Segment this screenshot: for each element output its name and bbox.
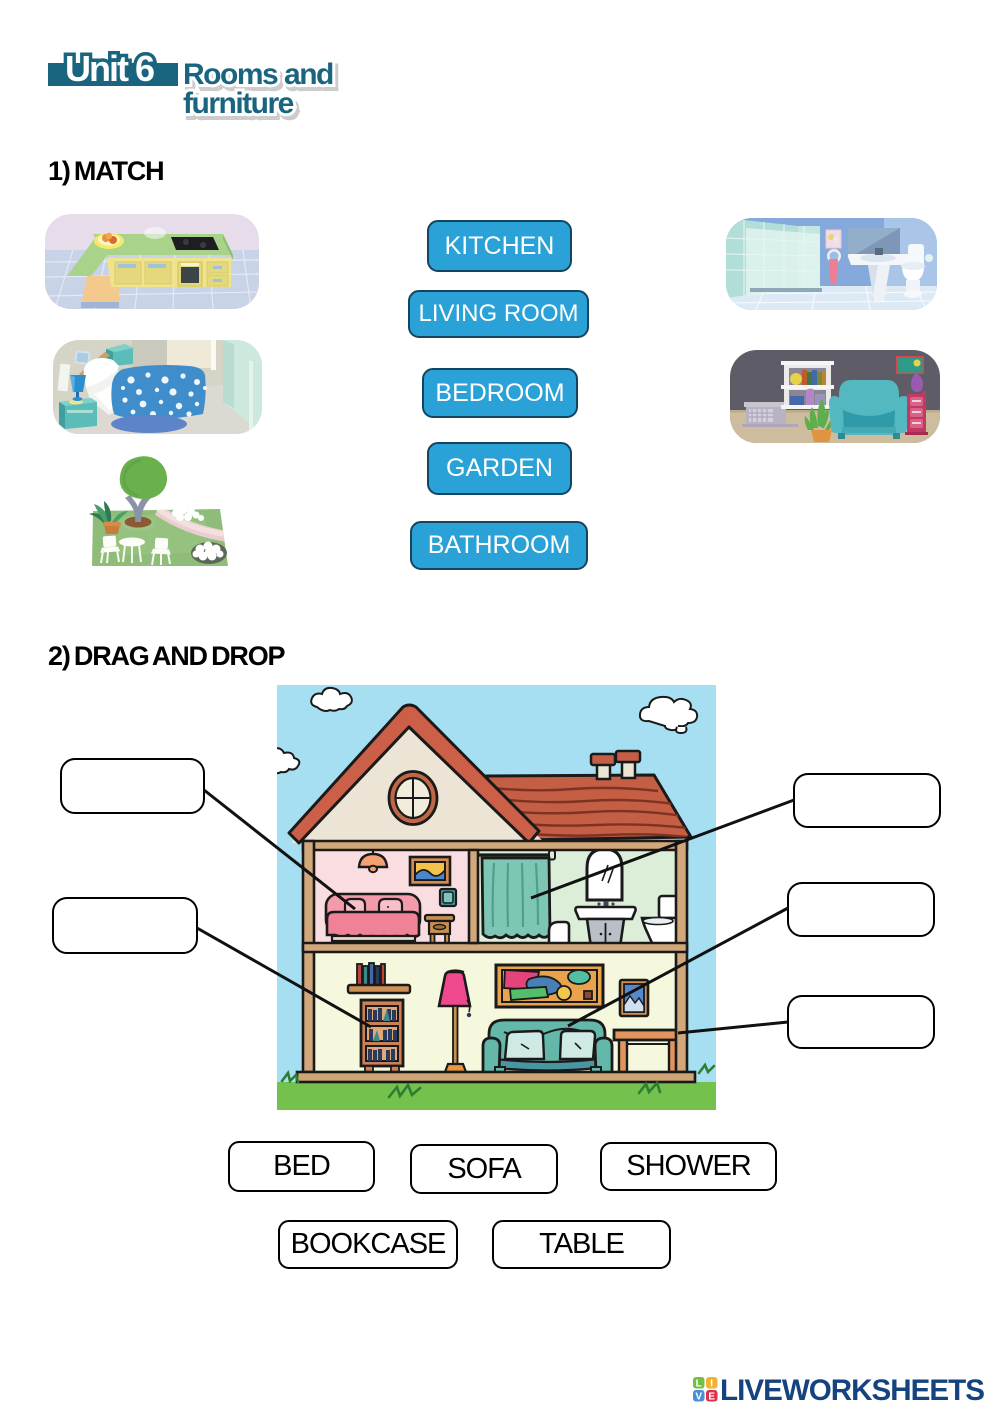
svg-text:I: I (710, 1379, 713, 1390)
svg-text:Unit 6: Unit 6 (65, 48, 154, 89)
svg-text:furniture: furniture (183, 87, 294, 120)
svg-text:L: L (696, 1379, 702, 1390)
svg-text:E: E (708, 1392, 715, 1403)
svg-text:V: V (695, 1392, 702, 1403)
svg-text:LIVEWORKSHEETS: LIVEWORKSHEETS (720, 1376, 984, 1403)
